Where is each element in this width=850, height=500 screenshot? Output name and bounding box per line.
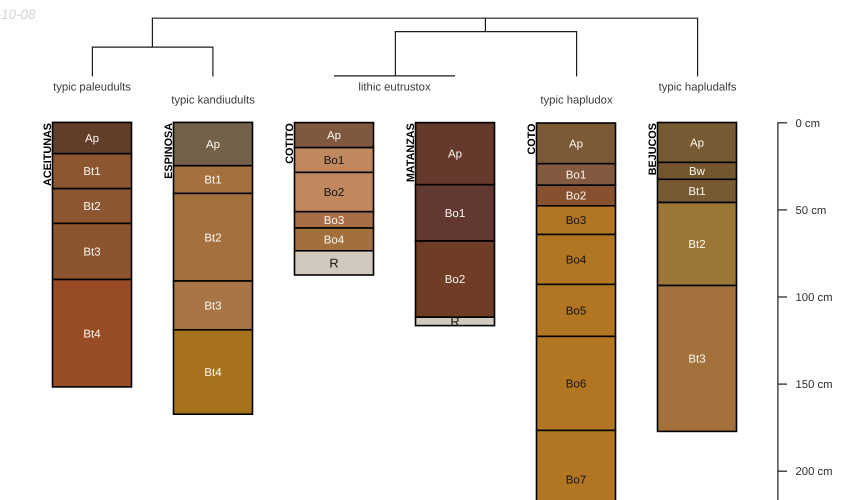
svg-text:Bt2: Bt2 (688, 239, 705, 251)
svg-text:ESPINOSA: ESPINOSA (163, 123, 175, 179)
svg-text:Bt1: Bt1 (688, 186, 705, 198)
svg-text:Bt1: Bt1 (204, 175, 221, 187)
svg-text:typic kandiudults: typic kandiudults (171, 95, 255, 107)
svg-text:COTITO: COTITO (284, 123, 296, 164)
svg-text:Ap: Ap (569, 138, 583, 150)
svg-text:Bt4: Bt4 (83, 328, 101, 340)
svg-text:100 cm: 100 cm (796, 292, 833, 304)
svg-text:0 cm: 0 cm (796, 118, 820, 130)
svg-text:typic paleudults: typic paleudults (53, 82, 131, 94)
svg-text:Bo5: Bo5 (566, 306, 586, 318)
svg-text:MATANZAS: MATANZAS (405, 123, 417, 182)
svg-text:Bo1: Bo1 (566, 170, 586, 182)
svg-text:Bo4: Bo4 (566, 255, 587, 267)
svg-text:150 cm: 150 cm (796, 379, 833, 391)
svg-text:lithic eutrustox: lithic eutrustox (358, 82, 431, 94)
svg-text:typic hapludalfs: typic hapludalfs (659, 82, 737, 94)
svg-text:Bo3: Bo3 (324, 215, 344, 227)
svg-text:Bt2: Bt2 (204, 232, 221, 244)
svg-text:Bt3: Bt3 (688, 354, 705, 366)
svg-text:Bt2: Bt2 (83, 201, 100, 213)
svg-text:Bw: Bw (689, 166, 706, 178)
svg-text:Bt1: Bt1 (83, 166, 100, 178)
svg-text:ACEITUNAS: ACEITUNAS (42, 123, 54, 186)
svg-text:Bo3: Bo3 (566, 215, 586, 227)
svg-text:Bo6: Bo6 (566, 379, 586, 391)
svg-text:Bt3: Bt3 (204, 301, 221, 313)
svg-text:Ap: Ap (206, 139, 220, 151)
svg-text:Bo1: Bo1 (324, 155, 344, 167)
svg-text:Ap: Ap (327, 130, 341, 142)
svg-text:Bt4: Bt4 (204, 367, 222, 379)
svg-text:Bo7: Bo7 (566, 475, 586, 487)
svg-text:BEJUCOS: BEJUCOS (647, 123, 659, 175)
svg-text:Bo2: Bo2 (324, 187, 344, 199)
svg-text:-10-08: -10-08 (0, 7, 36, 22)
svg-text:typic hapludox: typic hapludox (540, 95, 613, 107)
svg-text:Bo4: Bo4 (324, 235, 345, 247)
svg-text:50 cm: 50 cm (796, 205, 827, 217)
svg-text:Bt3: Bt3 (83, 247, 100, 259)
svg-text:R: R (329, 256, 338, 271)
svg-text:Ap: Ap (85, 133, 99, 145)
svg-text:Ap: Ap (690, 138, 704, 150)
svg-text:Bo1: Bo1 (445, 208, 465, 220)
svg-text:200 cm: 200 cm (796, 466, 833, 478)
svg-text:Ap: Ap (448, 149, 462, 161)
svg-text:Bo2: Bo2 (566, 191, 586, 203)
svg-text:Bo2: Bo2 (445, 274, 465, 286)
svg-text:COTO: COTO (526, 124, 538, 155)
